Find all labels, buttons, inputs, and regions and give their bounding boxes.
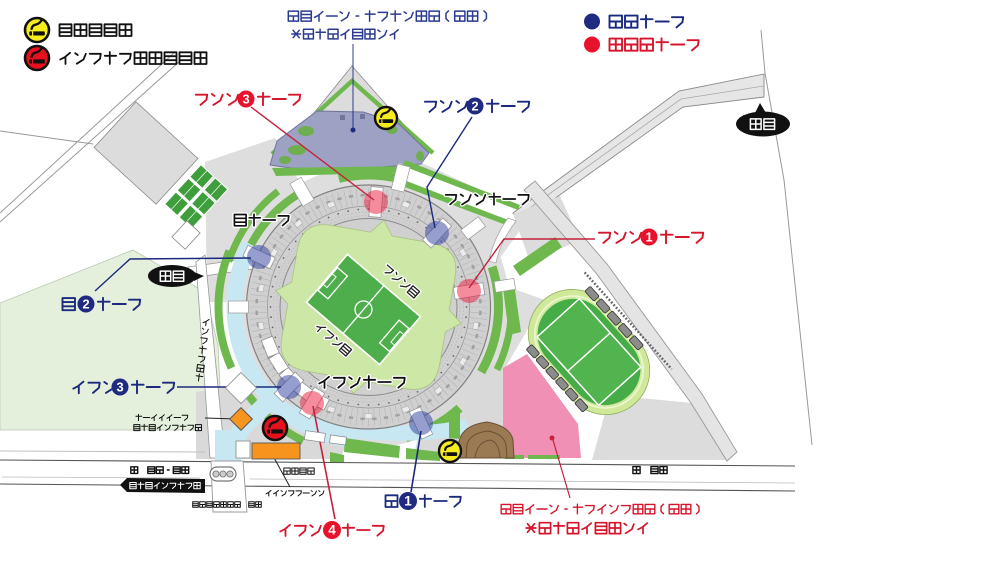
svg-text:1: 1 <box>404 494 412 509</box>
svg-text:1: 1 <box>645 230 652 245</box>
svg-text:2: 2 <box>82 297 89 312</box>
svg-text:3: 3 <box>116 380 123 395</box>
svg-text:2: 2 <box>471 99 478 114</box>
svg-text:3: 3 <box>242 92 249 107</box>
svg-text:4: 4 <box>328 523 336 538</box>
